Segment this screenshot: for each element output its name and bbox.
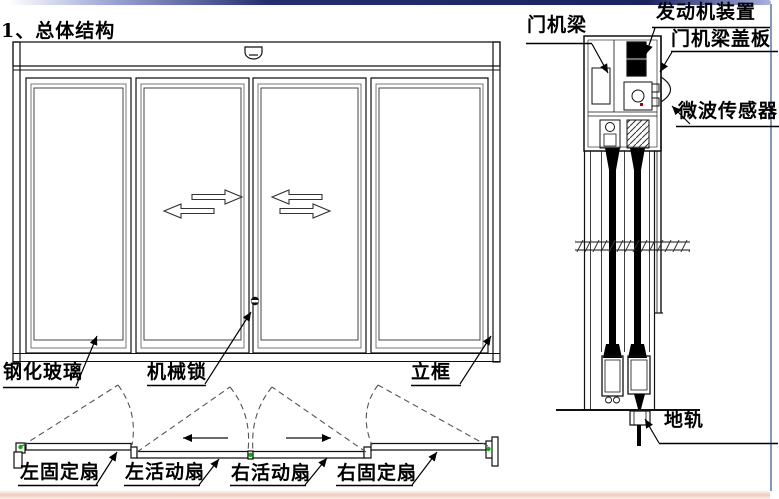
door-panel-right-active: [253, 78, 366, 353]
left-jamb: [13, 42, 20, 362]
mechanical-lock-icon: [251, 297, 259, 305]
plan-panel-right-active: [253, 452, 364, 459]
bottom-rail-boxes: [602, 356, 650, 409]
label-microwave-sensor: 微波传感器: [678, 101, 778, 122]
microwave-sensor-icon: [245, 47, 262, 59]
plan-junction-right: [364, 447, 371, 458]
label-vertical-frame: 立框: [411, 362, 451, 383]
label-mechanical-lock: 机械锁: [147, 362, 207, 383]
engine-unit-part: [624, 42, 659, 110]
slide: 1、总体结构: [0, 0, 779, 499]
diagram-canvas: [0, 0, 779, 499]
microwave-sensor-part: [661, 77, 671, 102]
plan-panel-left-fixed: [26, 444, 131, 451]
plan-junction-left: [131, 447, 137, 458]
label-right-fixed-leaf: 右固定扇: [337, 463, 417, 484]
section-break-line: [575, 240, 690, 252]
door-panel-right-fixed: [371, 78, 488, 353]
plan-panel-right-fixed: [371, 444, 486, 451]
plan-right-jamb-plate: [492, 437, 498, 466]
right-jamb: [493, 42, 500, 362]
label-right-active-leaf: 右活动扇: [231, 463, 311, 484]
hanger-roller-units: [600, 120, 649, 148]
door-panel-left-fixed: [26, 78, 131, 353]
glass-panels-section: [603, 148, 647, 358]
side-frame-verticals: [585, 151, 655, 410]
label-left-active-leaf: 左活动扇: [125, 462, 205, 483]
plan-view: [14, 385, 498, 468]
label-floor-track: 地轨: [664, 410, 704, 431]
leader-lines: [76, 28, 690, 485]
side-section: [556, 36, 700, 446]
swing-arcs: [22, 385, 488, 452]
label-engine-unit: 发动机装置: [656, 2, 756, 23]
label-underlines: [3, 28, 779, 486]
label-door-machine-beam: 门机梁: [527, 15, 587, 36]
slide-direction-arrows-icon: [164, 190, 330, 218]
label-beam-cover: 门机梁盖板: [671, 29, 771, 50]
label-tempered-glass: 钢化玻璃: [3, 362, 83, 383]
door-panel-left-active: [136, 78, 249, 353]
plan-panel-left-active: [137, 452, 248, 459]
door-machine-beam-front: [13, 42, 500, 70]
label-left-fixed-leaf: 左固定扇: [20, 462, 100, 483]
front-elevation: [13, 42, 500, 362]
